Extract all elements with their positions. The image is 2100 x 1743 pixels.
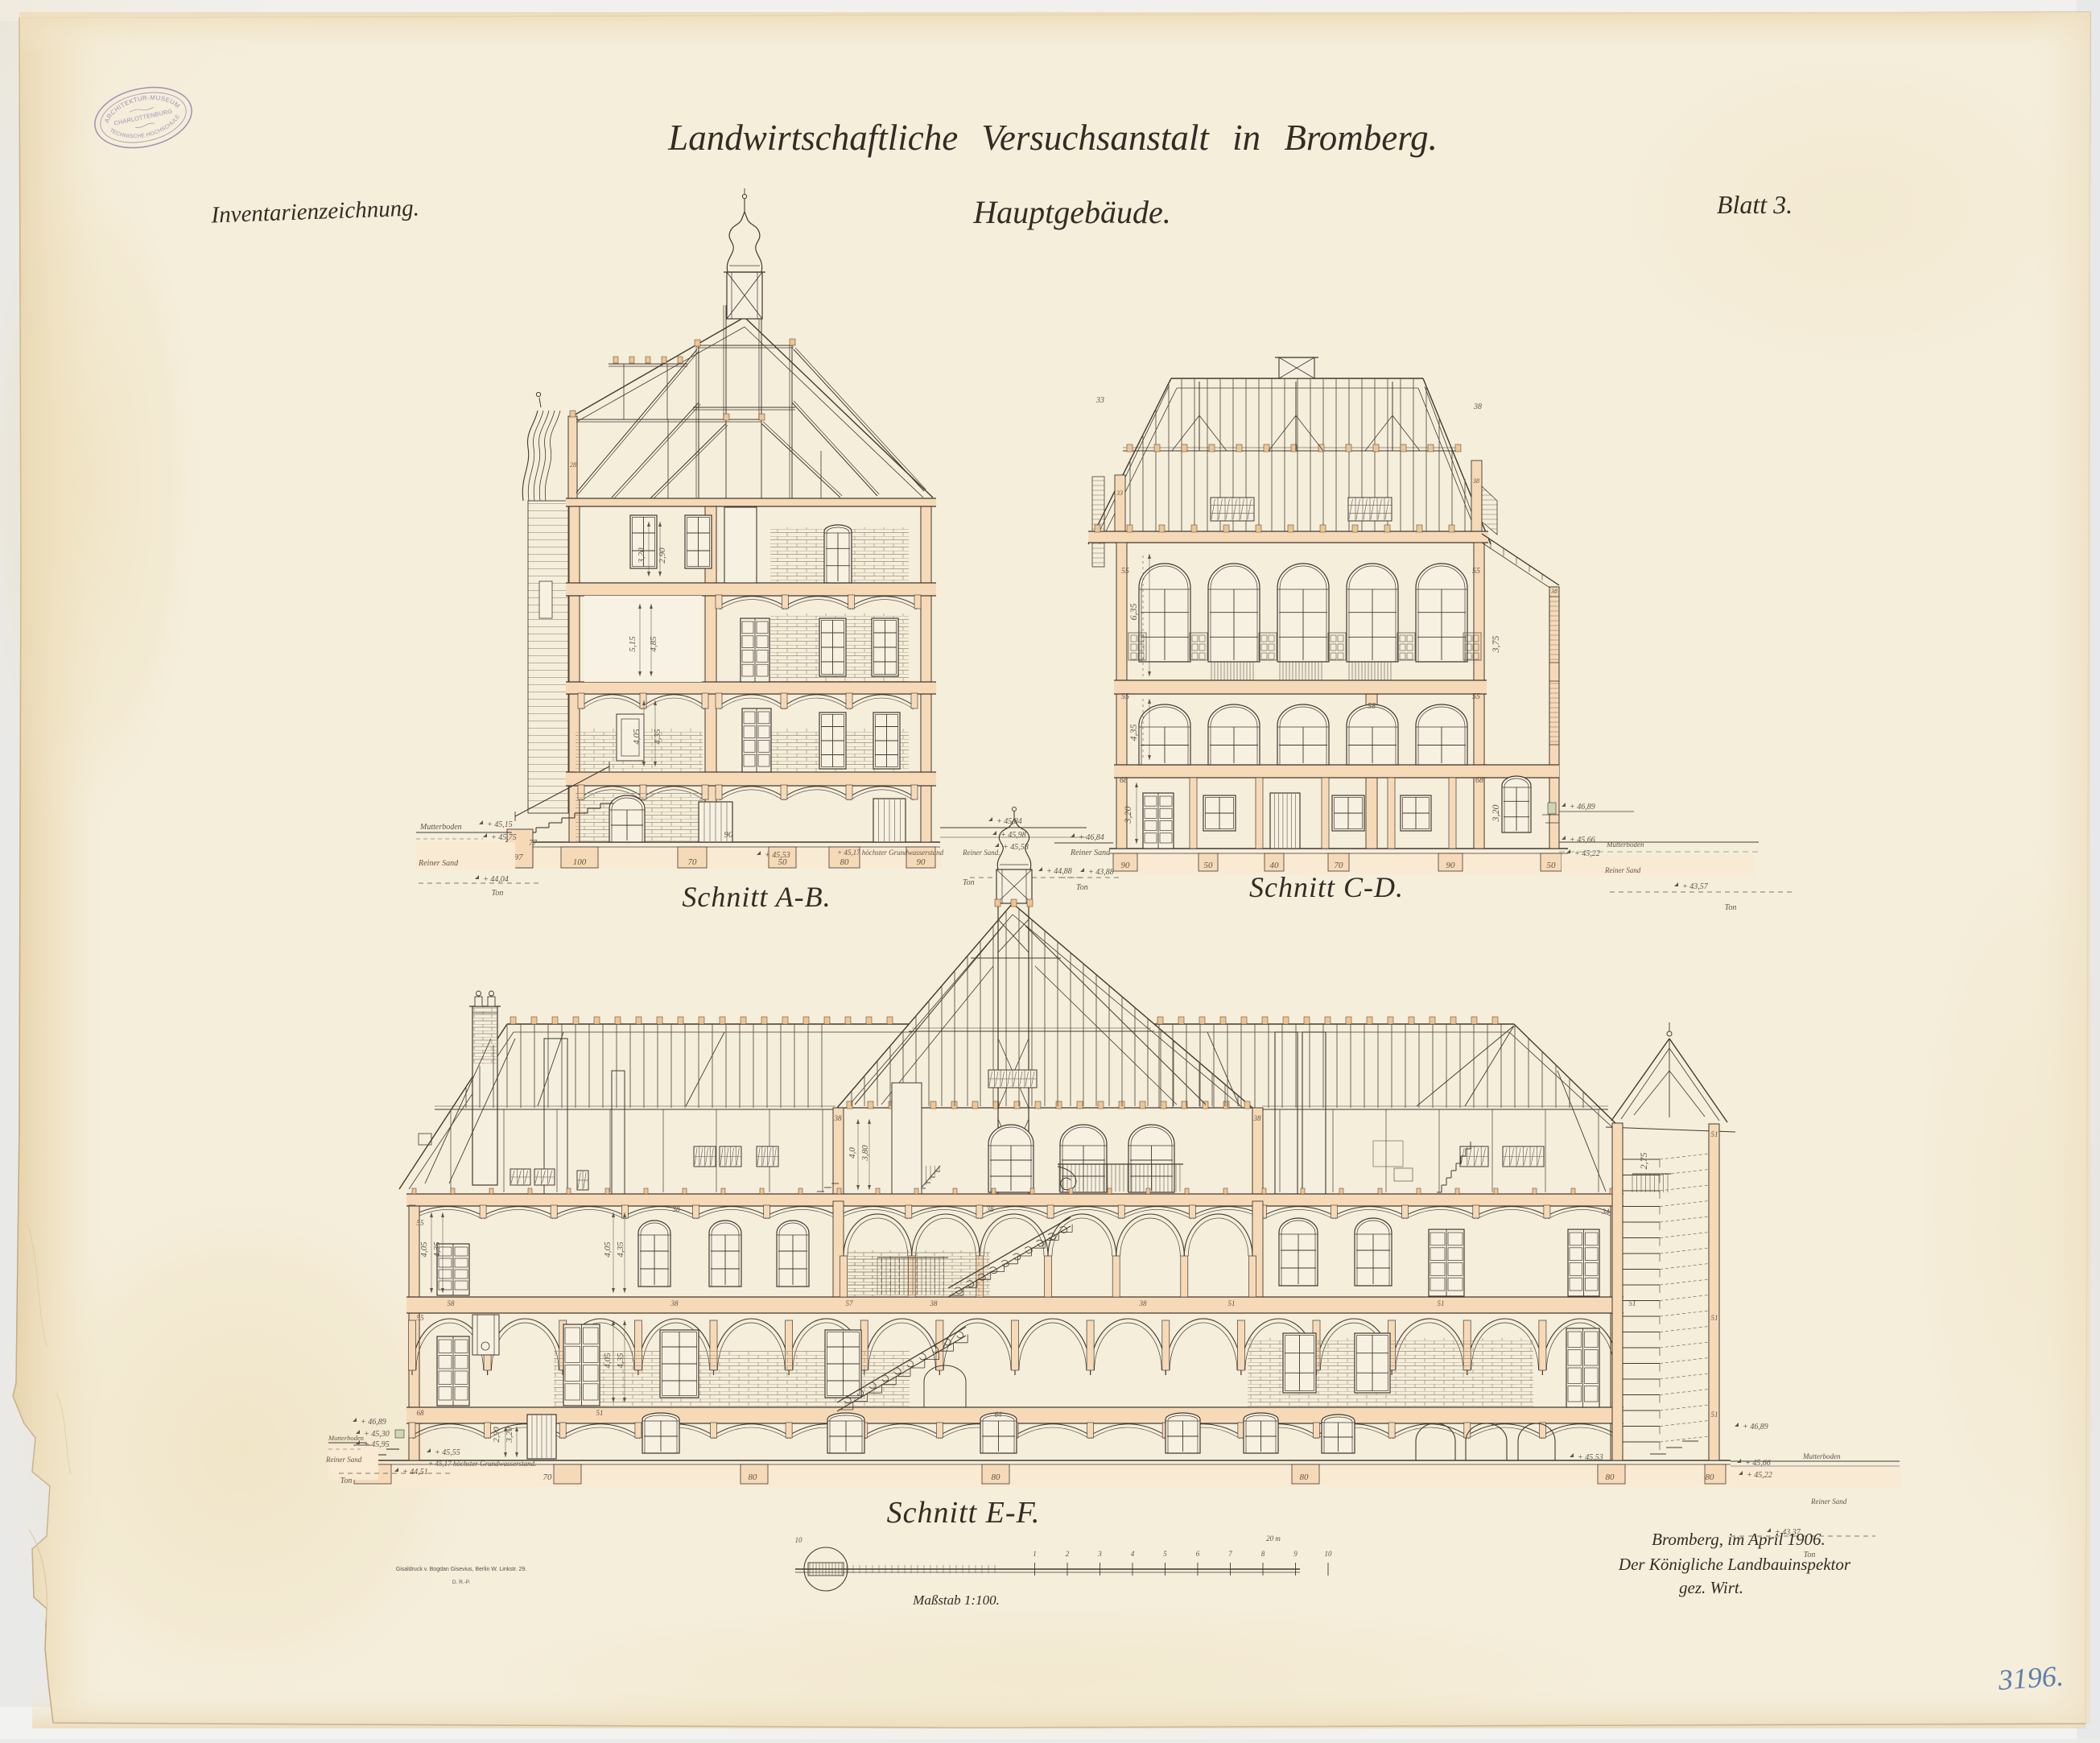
svg-text:55: 55 bbox=[1121, 692, 1129, 701]
svg-text:68: 68 bbox=[417, 1409, 425, 1417]
svg-text:Schnitt E-F.: Schnitt E-F. bbox=[887, 1496, 1041, 1530]
svg-text:Gisaldruck v. Bogdan Gisevius,: Gisaldruck v. Bogdan Gisevius, Berlin W.… bbox=[396, 1567, 527, 1572]
svg-text:2,75: 2,75 bbox=[1638, 1153, 1649, 1170]
svg-text:38: 38 bbox=[1139, 1299, 1148, 1307]
svg-text:3,20: 3,20 bbox=[1122, 807, 1133, 824]
svg-text:+ 46,89: + 46,89 bbox=[1570, 803, 1595, 812]
svg-text:51: 51 bbox=[1711, 1130, 1718, 1138]
svg-text:38: 38 bbox=[1473, 403, 1482, 411]
svg-text:10: 10 bbox=[795, 1536, 803, 1544]
svg-text:2,90: 2,90 bbox=[658, 547, 667, 564]
svg-text:3,20: 3,20 bbox=[1490, 805, 1501, 823]
svg-text:80: 80 bbox=[1606, 1472, 1615, 1482]
svg-text:38: 38 bbox=[670, 1299, 679, 1307]
svg-text:51: 51 bbox=[596, 1409, 604, 1417]
svg-text:50: 50 bbox=[1547, 861, 1557, 870]
svg-text:33: 33 bbox=[1116, 489, 1123, 497]
svg-text:+ 45,66: + 45,66 bbox=[1570, 836, 1595, 845]
svg-text:28: 28 bbox=[570, 461, 576, 469]
svg-text:38: 38 bbox=[1472, 477, 1479, 485]
svg-text:+ 45,98: + 45,98 bbox=[1000, 831, 1026, 840]
svg-text:+ 45,22: + 45,22 bbox=[1747, 1471, 1772, 1480]
svg-text:55: 55 bbox=[1472, 692, 1480, 701]
svg-text:3196.: 3196. bbox=[1996, 1659, 2065, 1696]
svg-text:97: 97 bbox=[514, 853, 524, 862]
svg-text:80: 80 bbox=[1706, 1472, 1715, 1482]
svg-text:20 m: 20 m bbox=[1266, 1534, 1281, 1543]
svg-text:100: 100 bbox=[573, 857, 587, 867]
svg-text:64: 64 bbox=[995, 1411, 1003, 1419]
svg-text:5: 5 bbox=[1163, 1550, 1167, 1558]
svg-text:+ 45,75: + 45,75 bbox=[491, 833, 517, 842]
svg-text:8: 8 bbox=[1261, 1550, 1265, 1558]
svg-text:+ 46,89: + 46,89 bbox=[361, 1418, 386, 1427]
svg-text:+ 44,04: + 44,04 bbox=[483, 875, 509, 884]
svg-text:+ 45,22: + 45,22 bbox=[1574, 849, 1600, 858]
svg-text:38: 38 bbox=[1550, 588, 1557, 595]
svg-text:57: 57 bbox=[846, 1299, 854, 1307]
svg-text:77: 77 bbox=[529, 839, 538, 848]
svg-text:4,35: 4,35 bbox=[653, 729, 662, 745]
svg-text:+ 45,53: + 45,53 bbox=[1578, 1453, 1603, 1462]
svg-text:Reiner Sand: Reiner Sand bbox=[325, 1456, 362, 1464]
svg-text:6,35: 6,35 bbox=[1128, 604, 1139, 621]
svg-text:+ 46,84: + 46,84 bbox=[1079, 833, 1104, 842]
svg-text:2,90: 2,90 bbox=[492, 1427, 501, 1443]
svg-text:51: 51 bbox=[1629, 1299, 1636, 1307]
svg-text:70: 70 bbox=[543, 1472, 553, 1482]
svg-text:D. R.-P.: D. R.-P. bbox=[452, 1580, 470, 1585]
svg-text:+ 45,58: + 45,58 bbox=[1003, 843, 1029, 852]
svg-text:80: 80 bbox=[992, 1472, 1001, 1482]
svg-text:51: 51 bbox=[1228, 1299, 1236, 1307]
svg-text:Ton: Ton bbox=[1076, 883, 1088, 892]
svg-text:4,05: 4,05 bbox=[419, 1241, 429, 1258]
svg-text:4,0: 4,0 bbox=[848, 1147, 857, 1159]
svg-text:38: 38 bbox=[986, 1205, 995, 1213]
svg-text:5,15: 5,15 bbox=[628, 636, 637, 652]
svg-text:+ 43,57: + 43,57 bbox=[1682, 882, 1709, 891]
svg-text:33: 33 bbox=[1095, 396, 1104, 405]
svg-text:38: 38 bbox=[672, 1205, 681, 1213]
svg-text:51: 51 bbox=[1711, 1411, 1718, 1419]
svg-text:4,35: 4,35 bbox=[616, 1353, 625, 1369]
svg-text:80: 80 bbox=[840, 857, 850, 867]
svg-text:6: 6 bbox=[1196, 1550, 1200, 1558]
svg-text:3,80: 3,80 bbox=[860, 1145, 870, 1162]
svg-text:+ 45,95: + 45,95 bbox=[364, 1440, 390, 1449]
svg-text:7: 7 bbox=[1228, 1550, 1232, 1558]
svg-text:70: 70 bbox=[1335, 861, 1344, 870]
svg-text:38: 38 bbox=[1253, 1114, 1262, 1122]
svg-text:90: 90 bbox=[917, 857, 926, 867]
svg-text:4: 4 bbox=[1131, 1550, 1135, 1558]
svg-text:Reiner Sand: Reiner Sand bbox=[1810, 1497, 1847, 1506]
svg-text:Der Königliche Landbauinspekto: Der Königliche Landbauinspektor bbox=[1618, 1555, 1851, 1574]
svg-text:+ 45,84: + 45,84 bbox=[996, 817, 1022, 826]
svg-text:55: 55 bbox=[417, 1219, 425, 1227]
svg-text:+ 45,17 höchster Grundwasser: + 45,17 höchster Grundwasserstand. bbox=[428, 1460, 536, 1468]
svg-text:Ton: Ton bbox=[963, 878, 975, 887]
svg-text:4,35: 4,35 bbox=[432, 1241, 442, 1258]
svg-text:58: 58 bbox=[448, 1299, 456, 1307]
svg-text:Landwirtschaftliche Versuchsan: Landwirtschaftliche Versuchsanstalt in B… bbox=[667, 118, 1438, 158]
svg-text:1: 1 bbox=[1033, 1550, 1037, 1558]
svg-text:+ 45,53: + 45,53 bbox=[765, 851, 790, 860]
svg-text:Reiner Sand: Reiner Sand bbox=[1604, 866, 1641, 874]
svg-text:90: 90 bbox=[724, 830, 734, 840]
svg-text:90: 90 bbox=[1121, 861, 1131, 870]
svg-text:2: 2 bbox=[1066, 1550, 1070, 1558]
svg-text:Mutterboden: Mutterboden bbox=[419, 823, 462, 832]
svg-text:38: 38 bbox=[834, 1114, 843, 1122]
svg-text:4,05: 4,05 bbox=[603, 1353, 613, 1369]
svg-text:70: 70 bbox=[688, 857, 698, 867]
svg-text:+ 46,89: + 46,89 bbox=[1743, 1423, 1768, 1431]
svg-text:Mutterboden: Mutterboden bbox=[328, 1434, 364, 1442]
svg-text:Mutterboden: Mutterboden bbox=[1606, 841, 1644, 849]
svg-text:Schnitt C-D.: Schnitt C-D. bbox=[1249, 871, 1404, 903]
svg-text:+ 45,15: + 45,15 bbox=[487, 820, 513, 829]
svg-text:50: 50 bbox=[1204, 861, 1214, 870]
svg-text:4,35: 4,35 bbox=[616, 1241, 625, 1258]
svg-text:68: 68 bbox=[1475, 776, 1483, 785]
svg-text:55: 55 bbox=[1121, 567, 1129, 576]
svg-text:38: 38 bbox=[930, 1299, 939, 1307]
svg-text:34: 34 bbox=[1602, 1208, 1611, 1216]
svg-text:58: 58 bbox=[1368, 702, 1376, 711]
svg-text:Reiner Sand: Reiner Sand bbox=[1070, 849, 1111, 857]
svg-text:90: 90 bbox=[1446, 861, 1456, 870]
svg-text:+ 45,17 höchster Grundwasser: + 45,17 höchster Grundwasserstand bbox=[837, 849, 944, 857]
svg-text:3: 3 bbox=[1097, 1550, 1102, 1558]
svg-text:Reiner Sand.: Reiner Sand. bbox=[962, 849, 1000, 857]
svg-text:55: 55 bbox=[417, 1314, 425, 1322]
svg-text:4,85: 4,85 bbox=[649, 636, 658, 652]
svg-text:4,05: 4,05 bbox=[603, 1241, 613, 1258]
svg-text:51: 51 bbox=[1438, 1299, 1445, 1307]
svg-text:55: 55 bbox=[1472, 567, 1480, 576]
svg-text:4,35: 4,35 bbox=[1128, 725, 1139, 741]
svg-text:10: 10 bbox=[1325, 1550, 1333, 1558]
svg-text:Schnitt A-B.: Schnitt A-B. bbox=[682, 881, 831, 913]
svg-text:Ton: Ton bbox=[340, 1477, 353, 1485]
svg-text:80: 80 bbox=[1300, 1472, 1310, 1482]
svg-text:+ 44,51: + 44,51 bbox=[402, 1468, 428, 1477]
svg-text:+ 45,30: + 45,30 bbox=[364, 1430, 390, 1439]
svg-text:Reiner Sand: Reiner Sand bbox=[418, 859, 459, 868]
svg-text:+ 45,66: + 45,66 bbox=[1745, 1459, 1771, 1468]
svg-text:80: 80 bbox=[749, 1472, 758, 1482]
svg-text:Mutterboden: Mutterboden bbox=[1802, 1452, 1841, 1460]
svg-text:Bromberg, im April 1906.: Bromberg, im April 1906. bbox=[1652, 1530, 1826, 1549]
svg-text:3,75: 3,75 bbox=[1490, 636, 1501, 654]
svg-text:gez. Wirt.: gez. Wirt. bbox=[1679, 1578, 1743, 1597]
svg-text:Ton: Ton bbox=[1725, 903, 1737, 912]
svg-text:+ 44,88: + 44,88 bbox=[1046, 867, 1072, 876]
svg-text:51: 51 bbox=[1711, 1314, 1718, 1322]
svg-text:9: 9 bbox=[1293, 1550, 1298, 1558]
svg-text:40: 40 bbox=[1270, 861, 1280, 870]
svg-text:Hauptgebäude.: Hauptgebäude. bbox=[972, 194, 1171, 230]
svg-text:Ton: Ton bbox=[492, 889, 504, 898]
svg-text:68: 68 bbox=[1120, 776, 1128, 785]
svg-text:3,20: 3,20 bbox=[637, 547, 646, 564]
svg-text:Maßstab 1:100.: Maßstab 1:100. bbox=[912, 1592, 1000, 1608]
svg-text:4,05: 4,05 bbox=[632, 729, 642, 745]
svg-text:+ 43,88: + 43,88 bbox=[1088, 868, 1114, 877]
svg-text:Blatt 3.: Blatt 3. bbox=[1717, 190, 1793, 219]
svg-text:+ 45,55: + 45,55 bbox=[435, 1448, 460, 1457]
